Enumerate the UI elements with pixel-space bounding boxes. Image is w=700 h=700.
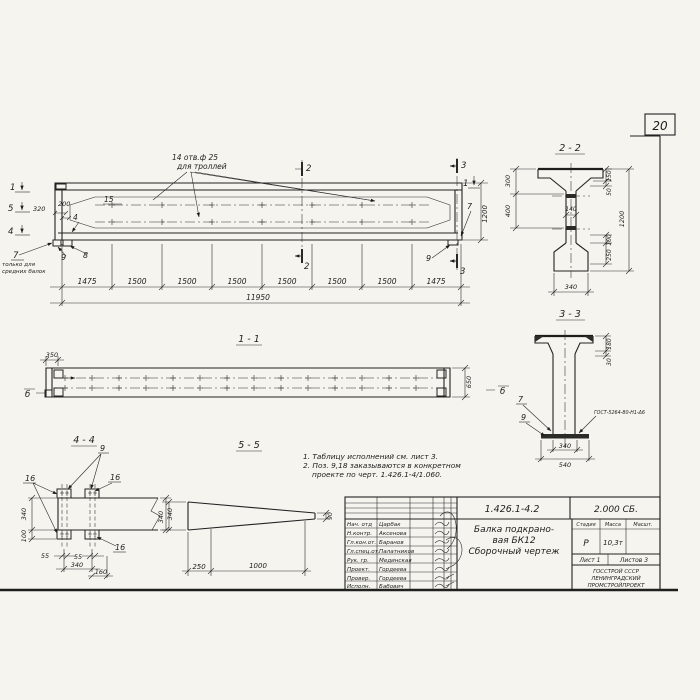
v11-rib-lb xyxy=(54,388,63,396)
s22-centerlines xyxy=(552,163,590,278)
tb-stage-header: Стадия xyxy=(576,522,595,528)
s22-dim-150: 150 xyxy=(606,170,613,182)
dim-320: 320 xyxy=(33,205,45,213)
s44-pos-16l-leader1 xyxy=(33,483,57,494)
s44-plate-bl xyxy=(57,530,71,539)
dim-seg-8: 1475 xyxy=(426,277,445,286)
drawing-canvas: 20 14 отв.ф 25 для троллей 1 5 4 xyxy=(0,0,700,700)
dim-seg-7: 1500 xyxy=(377,277,396,286)
s33-pos-9-leader xyxy=(526,423,545,436)
tb-stage-value: Р xyxy=(583,539,589,549)
s44-pos-16b-leader xyxy=(97,537,116,546)
bearing-tab-right xyxy=(448,240,458,245)
s22-dim-140: 140 xyxy=(565,206,577,213)
drawing-sheet: 20 14 отв.ф 25 для троллей 1 5 4 xyxy=(0,0,700,700)
tb-name-6: Гордеева xyxy=(379,576,407,582)
dim-200: 200 xyxy=(58,200,70,208)
s44-dim-100: 100 xyxy=(20,530,28,542)
tb-title-line2: вая БК12 xyxy=(492,536,535,546)
tb-name-1: Аксенова xyxy=(378,531,407,537)
s44-strip xyxy=(58,498,158,530)
tb-org-line2: ЛЕНИНГРАДСКИЙ xyxy=(590,575,640,582)
pos-8-leader xyxy=(70,246,87,254)
holes-callout-line2: для троллей xyxy=(176,162,227,171)
tb-name-7: Бабович xyxy=(379,584,404,590)
cut-label-2-bottom: 2 xyxy=(304,262,309,272)
cut-arrow-2t xyxy=(295,166,457,261)
holes-callout-line1: 14 отв.ф 25 xyxy=(172,153,218,162)
dim-seg-3: 1500 xyxy=(177,277,196,286)
v11-dim-350: 350 xyxy=(46,351,58,359)
v11-rib-lt xyxy=(54,370,63,378)
s44-pos-16-bottom: 16 xyxy=(115,543,125,552)
tb-doc-code: 2.000 СБ. xyxy=(594,505,638,515)
dim-seg-1: 1475 xyxy=(77,277,96,286)
beam-end-notch xyxy=(56,184,66,189)
tb-revision-rows xyxy=(345,503,457,513)
section-4-4: 4 - 4 9 16 16 16 340 100 340 55 55 340 1… xyxy=(20,435,174,579)
s55-dim-tip: 90 xyxy=(327,512,334,520)
s33-dim-340: 340 xyxy=(559,442,571,450)
tb-sheet-count: Листов 3 xyxy=(619,557,648,564)
s44-dim-340-left: 340 xyxy=(20,508,28,520)
notes: 1. Таблицу исполнений см. лист 3. 2. Поз… xyxy=(303,452,461,479)
s44-pos-9: 9 xyxy=(100,444,105,453)
s33-weld-leader xyxy=(579,416,596,433)
s33-dim-540: 540 xyxy=(559,461,571,469)
tb-title-line1: Балка подкрано- xyxy=(474,525,554,535)
tb-role-0: Нач. отд xyxy=(347,522,372,528)
tb-role-7: Исполн. xyxy=(347,584,371,590)
section-5-5-title: 5 - 5 xyxy=(238,440,260,451)
v11-rib-rb xyxy=(437,388,446,396)
v11-mark-left: б xyxy=(25,390,30,400)
tb-mass-header: Масса xyxy=(605,522,621,528)
dim-seg-6: 1500 xyxy=(327,277,346,286)
s22-left-dim-lines xyxy=(510,166,564,231)
mark-1-right: 1 xyxy=(463,179,468,189)
tb-org-line1: ГОССТРОЙ СССР xyxy=(593,568,640,575)
centerlines xyxy=(95,158,457,270)
cut-mark-4-left: 4 xyxy=(8,227,13,237)
s22-dim-250: 250 xyxy=(606,249,613,261)
tb-name-2: Баранов xyxy=(379,540,404,546)
tb-name-3: Палатников xyxy=(379,549,414,555)
v11-centerlines xyxy=(58,378,440,388)
dim-seg-4: 1500 xyxy=(227,277,246,286)
tb-name-0: Царбак xyxy=(379,522,401,528)
page-number: 20 xyxy=(652,119,668,133)
tb-role-1: Н.контр. xyxy=(347,531,372,537)
pos-4-leader xyxy=(72,222,79,232)
bearing-tab-left-2 xyxy=(63,240,72,246)
cut-mark-5-left: 5 xyxy=(8,204,13,214)
tb-role-4: Рук. гр. xyxy=(347,558,369,564)
s44-dim-55b: 55 xyxy=(74,553,82,561)
dim-seg-5: 1500 xyxy=(277,277,296,286)
pos-9-right: 9 xyxy=(426,254,431,263)
s22-dim-100: 100 xyxy=(606,234,613,246)
view-1-1-title: 1 - 1 xyxy=(238,334,260,345)
section-2-2-title: 2 - 2 xyxy=(559,143,581,154)
tb-org-line3: ПРОМСТРОЙПРОЕКТ xyxy=(588,582,646,589)
s44-pos-16l-leader2 xyxy=(33,483,57,533)
cut-label-3-top: 3 xyxy=(461,161,466,171)
v11-mark-right: б xyxy=(500,387,505,397)
s55-dim-1000: 1000 xyxy=(249,562,267,570)
tb-name-4: Мединская xyxy=(379,558,412,564)
section-3-3-title: 3 - 3 xyxy=(559,309,581,320)
section-2-2: 2 - 2 300 400 140 150 50 100 250 1200 34… xyxy=(504,143,634,296)
s44-pos-16-right: 16 xyxy=(110,473,120,482)
s33-pos-9: 9 xyxy=(521,413,526,422)
s44-plate-br xyxy=(85,530,99,539)
s22-dim-340: 340 xyxy=(565,283,577,291)
s44-pos-16-left: 16 xyxy=(25,474,35,483)
tb-role-5: Проект. xyxy=(347,567,370,573)
note-line-1: 1. Таблицу исполнений см. лист 3. xyxy=(303,452,438,461)
s55-dim-340: 340 xyxy=(157,511,165,523)
beam-outline xyxy=(55,183,462,240)
tb-title-line3: Сборочный чертеж xyxy=(468,547,560,557)
v11-outline xyxy=(46,368,450,397)
s33-dim-180: 180 xyxy=(606,338,613,350)
s44-dim-55a: 55 xyxy=(41,552,49,560)
pos-7-left: 7 xyxy=(13,251,19,261)
s44-pos-16r-leader xyxy=(95,483,112,491)
note-line-3: проекте по черт. 1.426.1-4/1.060. xyxy=(312,470,442,479)
s33-pos-7-leader xyxy=(523,405,551,431)
view-1-1: 1 - 1 350 650 б б xyxy=(24,334,509,400)
s33-pos-7: 7 xyxy=(518,395,524,404)
dim-1200: 1200 xyxy=(481,205,489,223)
cut-mark-1-left: 1 xyxy=(10,183,15,193)
tb-doc-number: 1.426.1-4.2 xyxy=(485,504,540,515)
s22-dim-1200: 1200 xyxy=(618,211,626,228)
s55-outline xyxy=(188,502,315,530)
s44-dim-160: 160 xyxy=(95,568,107,576)
title-block: 1.426.1-4.2 2.000 СБ. Балка подкрано- ва… xyxy=(345,497,660,590)
pos-7-left-leader xyxy=(19,243,52,255)
s33-weld-note: ГОСТ-5264-80-Н1-Δ6 xyxy=(594,410,645,416)
dim-total: 11950 xyxy=(246,293,270,302)
dim-seg-2: 1500 xyxy=(127,277,146,286)
tb-role-2: Гл.кон.от. xyxy=(347,540,376,546)
v11-dim-650: 650 xyxy=(465,376,473,388)
tb-mass-value: 10,3т xyxy=(603,539,624,547)
note-left-line2: средних балок xyxy=(2,269,46,275)
pos-9-right-leader xyxy=(432,245,450,258)
pos-7-right: 7 xyxy=(467,202,473,211)
tb-sheet-number: Лист 1 xyxy=(579,557,601,564)
holes-callout-leader2 xyxy=(190,172,375,201)
web-panel-lines xyxy=(70,197,450,228)
tb-role-6: Провер. xyxy=(347,576,370,582)
tb-role-3: Гл.спец.от. xyxy=(347,549,380,555)
s44-plate-tl xyxy=(57,489,71,498)
tb-scale-header: Масшт. xyxy=(633,522,652,528)
note-left-line1: только для xyxy=(2,262,36,268)
holes-callout-leaders xyxy=(153,172,375,217)
cut-label-2-top: 2 xyxy=(306,164,311,174)
s44-dim-340-bottom: 340 xyxy=(71,561,83,569)
s22-dim-300: 300 xyxy=(504,175,512,187)
s33-dim-30: 30 xyxy=(606,358,613,366)
s22-outline xyxy=(538,169,603,271)
s44-dim-340-right: 340 xyxy=(166,508,174,520)
cut-bars xyxy=(302,159,457,268)
s22-dim-50: 50 xyxy=(606,188,613,196)
bearing-tab-left-1 xyxy=(53,240,61,246)
section-3-3: 3 - 3 7 9 ГОСТ-5264-80-Н1-Δ6 180 30 340 … xyxy=(516,309,645,469)
pos-15: 15 xyxy=(104,195,114,204)
pos-4: 4 xyxy=(73,213,78,222)
v11-mark-right-ticks xyxy=(486,386,509,390)
section-4-4-title: 4 - 4 xyxy=(73,435,95,446)
note-line-2: 2. Поз. 9,18 заказываются в конкретном xyxy=(303,461,461,470)
v11-rib-rt xyxy=(437,370,446,378)
main-elevation-view: 14 отв.ф 25 для троллей 1 5 4 2 2 3 3 1 … xyxy=(2,153,489,306)
s22-dim-400: 400 xyxy=(504,205,512,217)
s55-dim-250: 250 xyxy=(192,563,206,571)
s33-outline xyxy=(535,336,593,434)
tb-name-5: Гордеева xyxy=(379,567,407,573)
